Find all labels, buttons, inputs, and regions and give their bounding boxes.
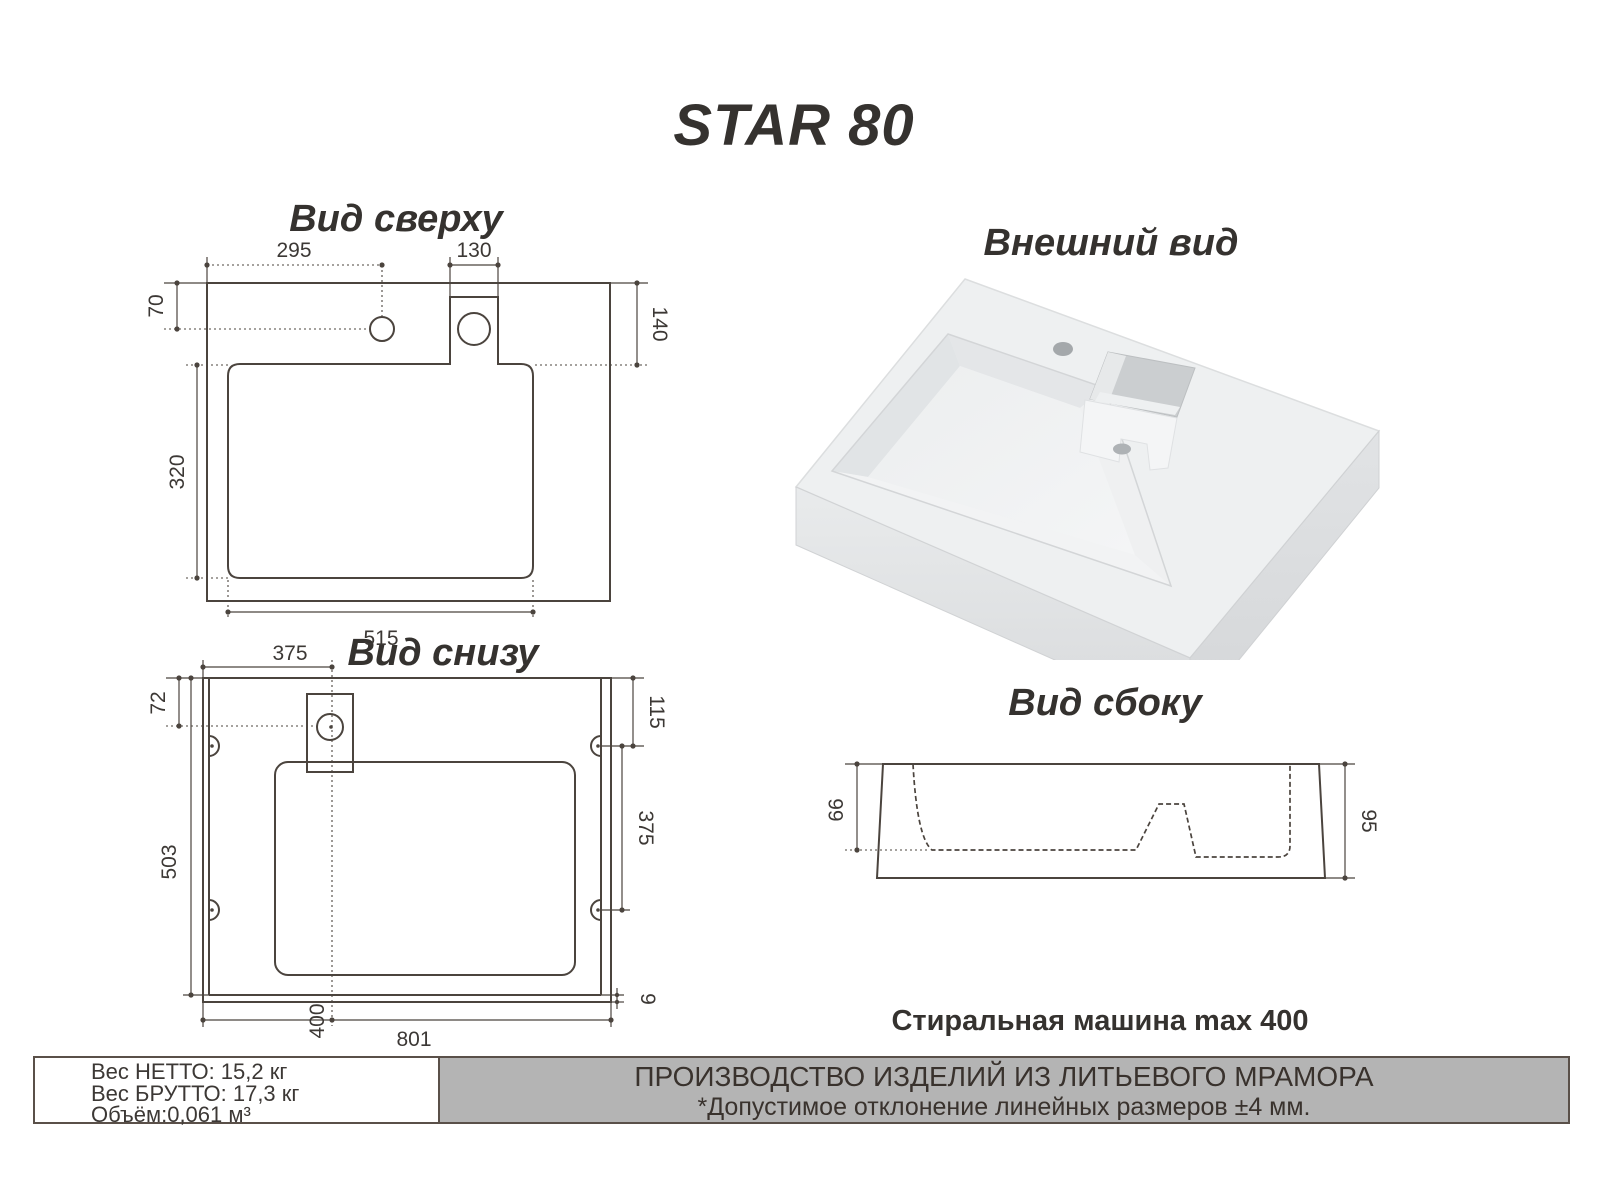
dim-95: 95 bbox=[1357, 809, 1380, 832]
top-view-outline bbox=[207, 283, 610, 601]
top-view-title: Вид сверху bbox=[289, 198, 503, 241]
dim-375-right: 375 bbox=[634, 810, 657, 845]
dim-130: 130 bbox=[456, 240, 491, 262]
external-view-render bbox=[760, 250, 1420, 660]
bottom-view-drawing: 375 72 503 115 375 9 400 801 bbox=[140, 645, 675, 1060]
faucet-hole-3d bbox=[1053, 342, 1073, 356]
dim-115: 115 bbox=[645, 695, 668, 728]
dim-70: 70 bbox=[145, 294, 168, 317]
dim-140: 140 bbox=[648, 306, 670, 341]
page-title: STAR 80 bbox=[673, 92, 914, 159]
production-line1: ПРОИЗВОДСТВО ИЗДЕЛИЙ ИЗ ЛИТЬЕВОГО МРАМОР… bbox=[440, 1061, 1568, 1093]
bottom-view-bowl bbox=[275, 762, 575, 975]
side-view-outline bbox=[877, 764, 1325, 878]
side-view-basin-profile bbox=[913, 764, 1290, 857]
dim-66: 66 bbox=[825, 798, 848, 821]
drain-box bbox=[307, 694, 353, 772]
washer-max-note: Стиральная машина max 400 bbox=[891, 1005, 1308, 1038]
bottom-view-outline bbox=[203, 678, 611, 1002]
basin-drain-hole bbox=[1113, 444, 1131, 455]
production-line2: *Допустимое отклонение линейных размеров… bbox=[440, 1093, 1568, 1121]
side-view-drawing: 66 95 bbox=[820, 700, 1390, 900]
dim-9: 9 bbox=[636, 993, 659, 1005]
overflow-hole bbox=[458, 313, 490, 345]
dim-801: 801 bbox=[396, 1028, 431, 1051]
dim-400: 400 bbox=[306, 1003, 329, 1038]
production-note-box: ПРОИЗВОДСТВО ИЗДЕЛИЙ ИЗ ЛИТЬЕВОГО МРАМОР… bbox=[440, 1056, 1570, 1124]
net-weight: Вес НЕТТО: 15,2 кг bbox=[91, 1061, 438, 1083]
faucet-hole bbox=[370, 317, 394, 341]
spec-sheet: STAR 80 Вид сверху Внешний вид Вид снизу… bbox=[0, 0, 1600, 1200]
gross-weight: Вес БРУТТО: 17,3 кг bbox=[91, 1083, 438, 1105]
weight-volume-box: Вес НЕТТО: 15,2 кг Вес БРУТТО: 17,3 кг О… bbox=[33, 1056, 440, 1124]
dim-375-top: 375 bbox=[272, 645, 307, 665]
dim-295: 295 bbox=[276, 240, 311, 262]
dim-72: 72 bbox=[147, 691, 170, 714]
top-view-drawing: 295 130 70 320 140 515 bbox=[140, 240, 670, 655]
volume: Объём:0,061 м³ bbox=[91, 1104, 438, 1126]
dim-503: 503 bbox=[158, 844, 181, 879]
dim-320: 320 bbox=[166, 454, 189, 489]
